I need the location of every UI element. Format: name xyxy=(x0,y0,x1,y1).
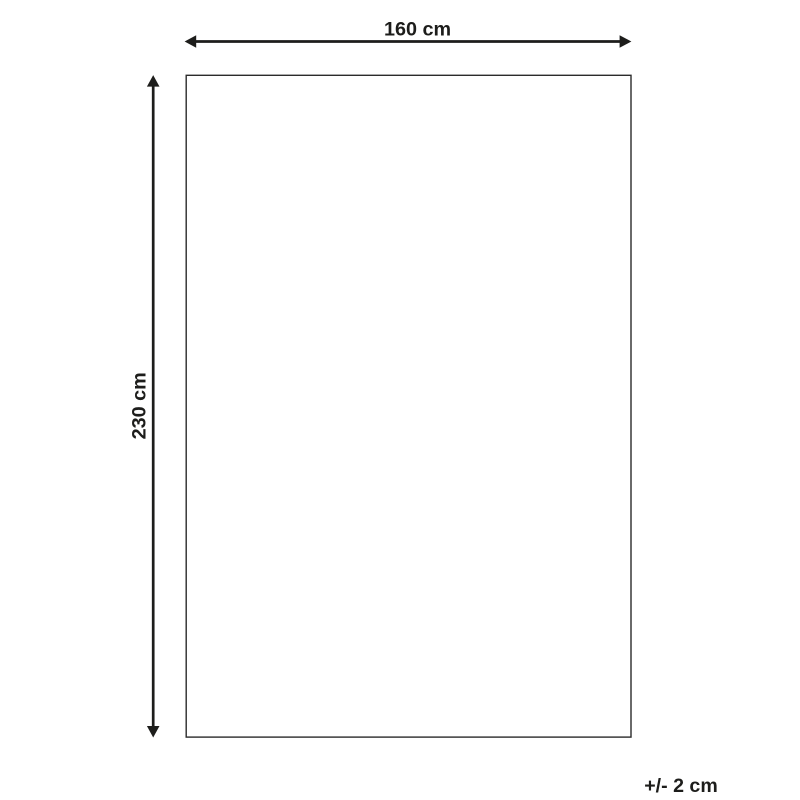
svg-text:230 cm: 230 cm xyxy=(129,372,151,439)
svg-text:160 cm: 160 cm xyxy=(384,18,451,40)
svg-text:+/- 2 cm: +/- 2 cm xyxy=(644,775,718,797)
